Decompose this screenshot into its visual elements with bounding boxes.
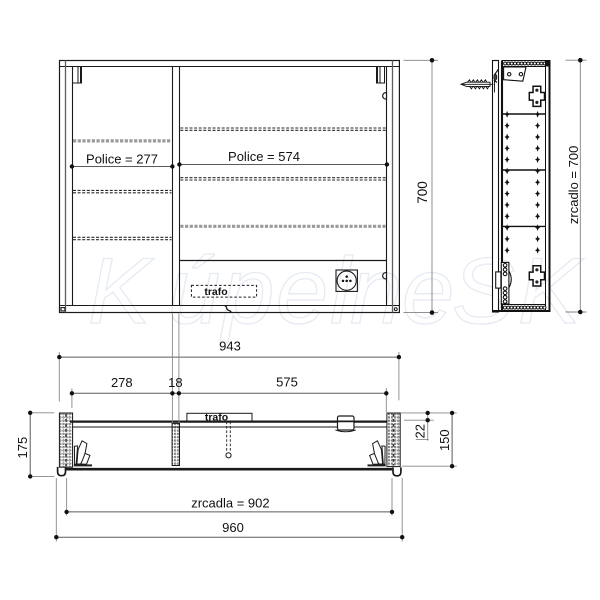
svg-text:22: 22 (412, 424, 427, 438)
svg-text:Police = 574: Police = 574 (228, 149, 300, 164)
svg-text:trafo: trafo (205, 411, 228, 423)
svg-text:zrcadlo = 700: zrcadlo = 700 (566, 146, 581, 224)
svg-text:150: 150 (437, 429, 452, 451)
svg-text:trafo: trafo (204, 286, 227, 298)
svg-text:960: 960 (222, 520, 244, 535)
svg-text:278: 278 (111, 375, 133, 390)
svg-text:Police = 277: Police = 277 (86, 152, 158, 167)
svg-text:943: 943 (219, 339, 241, 354)
svg-text:zrcadla = 902: zrcadla = 902 (191, 495, 269, 510)
svg-text:18: 18 (168, 375, 182, 390)
svg-text:175: 175 (15, 437, 30, 459)
svg-text:575: 575 (276, 374, 298, 389)
svg-text:700: 700 (415, 181, 430, 204)
